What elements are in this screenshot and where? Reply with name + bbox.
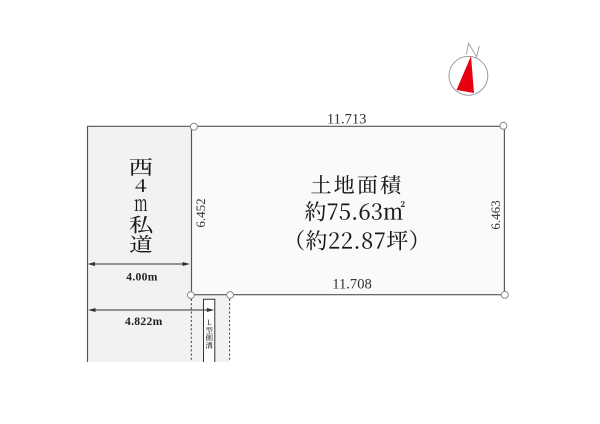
svg-text:11.708: 11.708 <box>332 276 372 292</box>
svg-text:6.452: 6.452 <box>193 198 208 227</box>
svg-text:4.00m: 4.00m <box>126 271 157 284</box>
svg-text:11.713: 11.713 <box>327 112 367 128</box>
svg-text:6.463: 6.463 <box>488 200 503 229</box>
svg-text:4.822m: 4.822m <box>125 315 163 328</box>
